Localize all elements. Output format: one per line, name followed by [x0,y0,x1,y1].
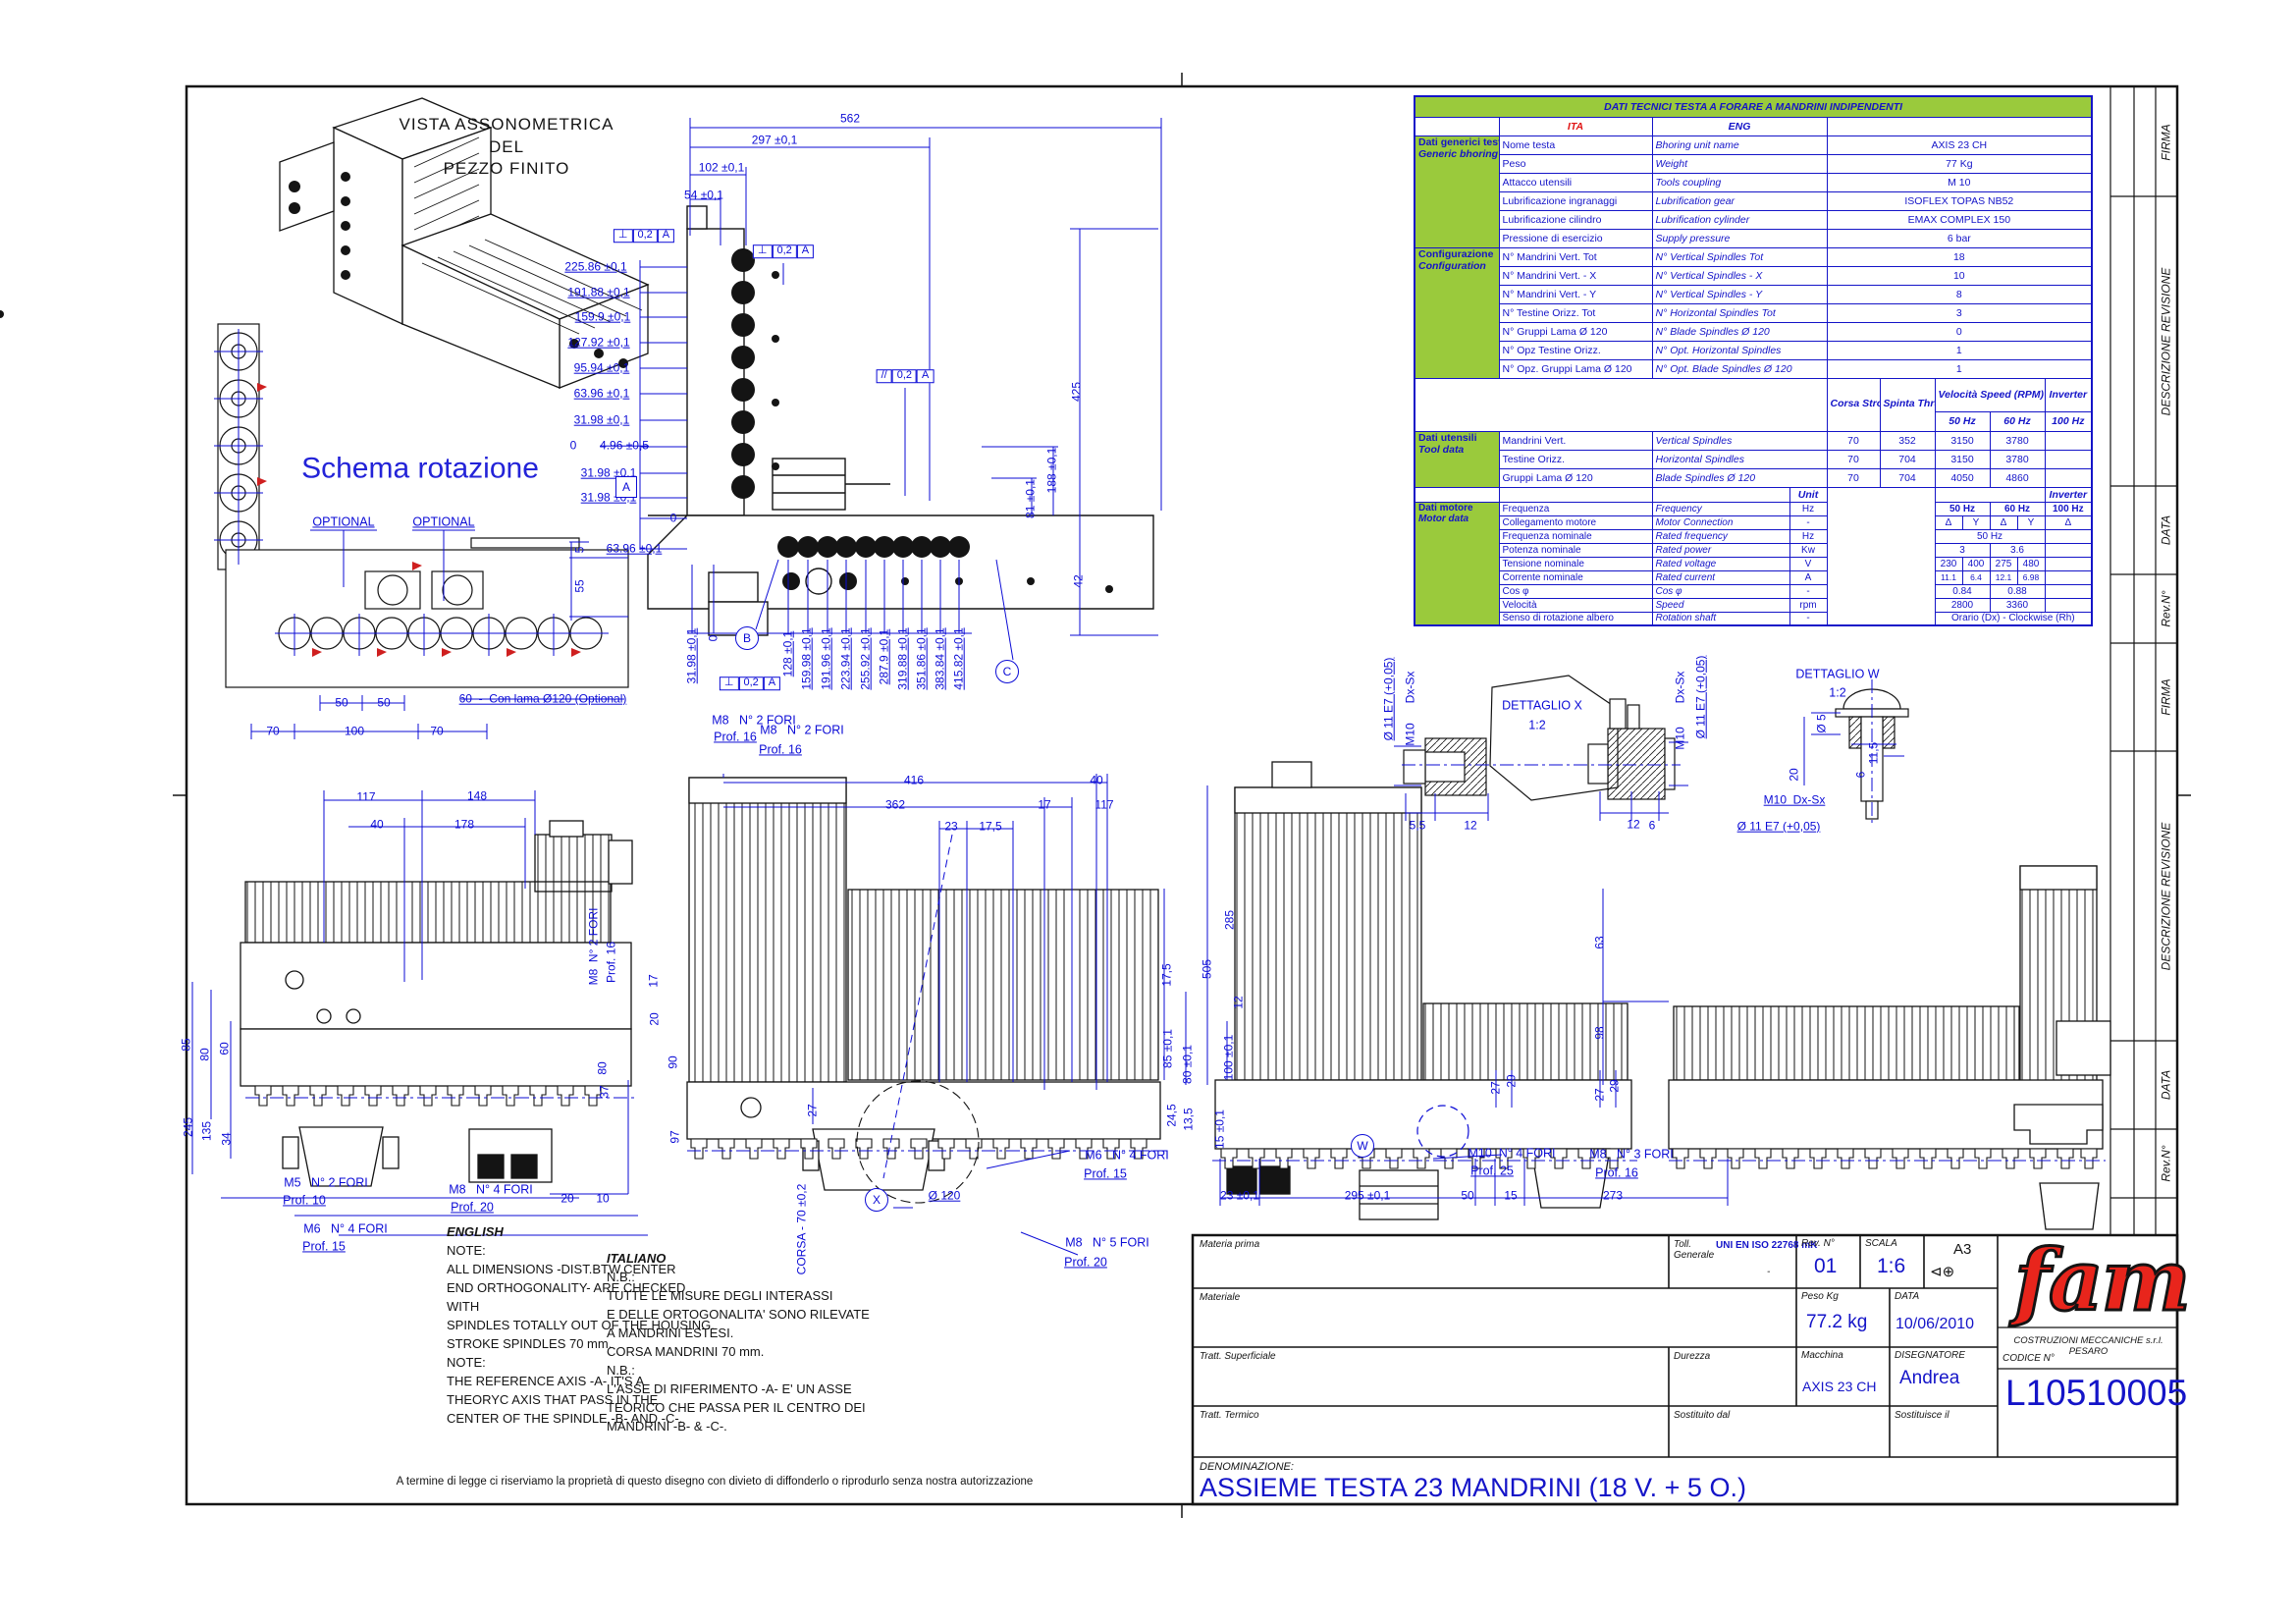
codice-value: L10510005 [2005,1373,2187,1414]
table-cell: Δ [2045,515,2092,529]
dim-label: 70 [266,726,279,738]
gdt-cell: A [797,244,814,258]
table-cell: N° Opt. Blade Spindles Ø 120 [1652,359,1827,378]
dim-label: 27 [1490,1081,1503,1094]
table-cell: N° Vertical Spindles Tot [1652,247,1827,266]
table-cell: 3780 [1990,450,2045,468]
table-cell: 3360 [1990,598,2045,612]
note-line: TEORICO CHE PASSA PER IL CENTRO DEI [607,1398,870,1417]
dim-label: 80 [597,1061,610,1074]
table-cell: Velocità [1499,598,1652,612]
table-cell: Kw [1789,543,1827,557]
dim-label: 97 [669,1130,682,1143]
table-cell: Y [1962,515,1990,529]
gdt-cell: 0,2 [772,244,796,258]
table-cell: 70 [1827,450,1880,468]
revision-strip-label: DESCRIZIONE REVISIONE [2161,823,2173,971]
hole-callout: M10 N° 4 FORI [1468,1147,1555,1160]
peso-value: 77.2 kg [1806,1312,1867,1333]
gdt-cell: A [658,229,674,243]
dim-label: 85 ±0,1 [1162,1029,1175,1068]
dim-label: Ø 11 E7 (+0,05) [1383,658,1396,741]
front-view-y [687,774,1227,1255]
dim-label: 80 [199,1048,212,1060]
dim-label: 85 [181,1038,193,1051]
table-cell: N° Vertical Spindles - X [1652,266,1827,285]
table-cell: 400 [1962,557,1990,570]
dim-label: 297 ±0,1 [752,135,798,147]
gdt-cell: 0,2 [738,677,763,690]
gdt-cell: A [764,677,780,690]
table-cell: Δ [1935,515,1962,529]
table-cell: 4860 [1990,468,2045,487]
table-cell: Attacco utensili [1499,173,1652,191]
speed-header: Spinta Thrust (N) [1880,378,1935,431]
dim-label: 159.9 ±0,1 [575,311,631,324]
table-cell: Cos φ [1652,584,1789,598]
dim-label: 50 [335,697,347,710]
table-cell: Hz [1789,502,1827,515]
gdt-cell: ⊥ [753,244,773,258]
hole-callout: M8 N° 3 FORI [1589,1148,1674,1161]
table-cell: Gruppi Lama Ø 120 [1499,468,1652,487]
table-cell: Testine Orizz. [1499,450,1652,468]
dim-label: OPTIONAL [312,515,374,528]
balloon-label: W [1351,1134,1374,1158]
dim-label: 37 [599,1085,612,1098]
schema-rotazione-drawing [214,324,628,739]
detail-x-scale: 1:2 [1528,719,1545,731]
group-label-general: Dati generici testaGeneric bhoring unit … [1415,135,1499,247]
group-label-tool: Dati utensiliTool data [1415,431,1499,487]
table-cell: N° Gruppi Lama Ø 120 [1499,322,1652,341]
disegnatore-value: Andrea [1899,1368,1959,1389]
dim-label: 128 ±0,1 [782,631,795,677]
projection-symbol-icon: ⊲⊕ [1930,1263,1954,1280]
detail-w-scale: 1:2 [1829,686,1845,699]
macchina-value: AXIS 23 CH [1802,1379,1876,1394]
speed-header: Corsa Stroke (mm) [1827,378,1880,431]
dim-label: 505 [1201,959,1214,979]
dim-label: 0 [570,440,577,453]
field-peso: Peso Kg [1801,1291,1839,1302]
dim-label: 15 [1504,1190,1517,1203]
denominazione-label: DENOMINAZIONE: [1200,1461,1294,1473]
table-cell [2045,450,2092,468]
dim-label: 362 [885,799,905,812]
dim-label: 5,5 [1410,820,1426,833]
revision-strip-label: DATA [2161,1070,2173,1100]
table-cell: Vertical Spindles [1652,431,1827,450]
note-line: MANDRINI -B- & -C-. [607,1417,870,1435]
table-cell: 1 [1827,341,2092,359]
dim-label: 225.86 ±0,1 [564,261,626,274]
table-cell: N° Mandrini Vert. - X [1499,266,1652,285]
table-cell: 0 [1827,322,2092,341]
table-cell: A [1789,570,1827,584]
speed-header: 60 Hz [1990,411,2045,431]
dim-label: 178 [454,819,474,832]
table-cell: Rated frequency [1652,529,1789,543]
note-line: ENGLISH [447,1222,715,1241]
table-cell: Rated power [1652,543,1789,557]
dim-label: 40 [370,819,383,832]
dim-label: 29 [1609,1079,1622,1092]
table-cell: Motor Connection [1652,515,1789,529]
table-cell: 6.4 [1962,570,1990,584]
table-cell: N° Testine Orizz. Tot [1499,303,1652,322]
codice-label: CODICE N° [2002,1353,2055,1364]
balloon-label: X [865,1188,888,1212]
dim-label: 42 [1073,574,1086,587]
table-cell: Corrente nominale [1499,570,1652,584]
table-cell: ISOFLEX TOPAS NB52 [1827,191,2092,210]
toll-dash: - [1767,1267,1770,1277]
note-line: A MANDRINI ESTESI. [607,1324,870,1342]
table-cell: Pressione di esercizio [1499,229,1652,247]
dim-label: 31.98 ±0,1 [686,628,699,684]
hole-callout: M6 N° 4 FORI [303,1222,388,1235]
inverter-label: Inverter [2045,487,2092,502]
dim-label: 159.98 ±0,1 [801,627,814,689]
dim-label: 191.96 ±0,1 [821,627,833,689]
revision-strip-label: DATA [2161,515,2173,545]
drawing-sheet: VISTA ASSONOMETRICADELPEZZO FINITOSchema… [0,0,2296,1624]
table-cell: Mandrini Vert. [1499,431,1652,450]
dim-label: 20 [561,1193,573,1206]
table-cell: Δ [1990,515,2017,529]
field-scala: SCALA [1865,1238,1897,1249]
dim-label: 60 - Con lama Ø120 (Optional) [459,693,627,706]
revision-strip [2110,86,2177,1235]
dim-label: 135 [201,1121,214,1141]
dim-label: 188 ±0,1 [1046,448,1059,494]
hole-callout: Prof. 25 [1470,1164,1514,1177]
table-cell: AXIS 23 CH [1827,135,2092,154]
revision-strip-label: Rev.N° [2161,1145,2173,1181]
dim-label: OPTIONAL [412,515,474,528]
table-cell: Rated voltage [1652,557,1789,570]
table-cell: M 10 [1827,173,2092,191]
dim-label: 4.96 ±0,5 [600,440,649,453]
table-cell: 77 Kg [1827,154,2092,173]
table-cell: Speed [1652,598,1789,612]
field-sostituisce-il: Sostituisce il [1895,1410,1949,1421]
field-tratt-termico: Tratt. Termico [1200,1410,1259,1421]
table-cell: N° Opt. Horizontal Spindles [1652,341,1827,359]
table-cell: V [1789,557,1827,570]
hole-callout: M8 N° 4 FORI [449,1183,533,1196]
table-cell [2045,584,2092,598]
detail-x-title: DETTAGLIO X [1502,699,1582,712]
dim-label: 23 ±0,1 [1220,1190,1259,1203]
gdt-cell: ⊥ [720,677,739,690]
table-cell: Peso [1499,154,1652,173]
dim-label: 12 [1464,820,1476,833]
table-cell: 0.84 [1935,584,1990,598]
field-disegnatore: DISEGNATORE [1895,1350,1965,1361]
dim-label: Ø 5 [1816,714,1829,732]
legal-disclaimer: A termine di legge ci riserviamo la prop… [243,1476,1186,1488]
gdt-frame: ⊥0,2A [614,229,674,243]
dim-label: M10 Dx-Sx [1764,794,1826,807]
datum-label: A [615,476,637,498]
col-header-ita: ITA [1499,117,1652,135]
field-data: DATA [1895,1291,1919,1302]
dim-label: 287.9 ±0,1 [879,629,891,685]
dim-label: 17 [1038,799,1050,812]
hole-callout: M5 N° 2 FORI [284,1176,368,1189]
table-cell [2045,431,2092,450]
scala-value: 1:6 [1877,1255,1905,1278]
detail-w-title: DETTAGLIO W [1795,668,1879,680]
table-cell: Tools coupling [1652,173,1827,191]
notes-italian: ITALIANON.B.:TUTTE LE MISURE DEGLI INTER… [607,1249,870,1435]
dim-label: Ø 120 [929,1190,961,1203]
dim-label: 5 [574,547,587,554]
dim-label: 13,5 [1183,1108,1196,1130]
dim-label: 29 [1506,1074,1519,1087]
table-cell: 6 bar [1827,229,2092,247]
note-line: TUTTE LE MISURE DEGLI INTERASSI [607,1286,870,1305]
dim-label: 55 [574,579,587,592]
table-cell: 275 [1990,557,2017,570]
table-cell: 352 [1880,431,1935,450]
speed-header: 50 Hz [1935,411,1990,431]
table-cell: 0.88 [1990,584,2045,598]
field-tratt-superficiale: Tratt. Superficiale [1200,1351,1276,1362]
table-cell: Rotation shaft [1652,612,1789,625]
dim-label: 54 ±0,1 [684,189,723,202]
table-cell: 1 [1827,359,2092,378]
dim-label: 27 [807,1104,820,1116]
table-cell: Frequenza [1499,502,1652,515]
hole-callout: M8 N° 2 FORI [760,724,844,736]
table-cell: N° Mandrini Vert. Tot [1499,247,1652,266]
gdt-cell: A [917,369,934,383]
note-line: L'ASSE DI RIFERIMENTO -A- E' UN ASSE [607,1380,870,1398]
table-cell: 50 Hz [1935,502,1990,515]
table-cell [2045,543,2092,557]
hole-callout: Prof. 10 [283,1194,326,1207]
rev-value: 01 [1814,1255,1837,1278]
dim-label: 0 [708,635,721,642]
gdt-cell: ⊥ [614,229,633,243]
dim-label: 0 [670,513,677,525]
hole-callout: Prof. 16 [1595,1166,1638,1179]
speed-header: 100 Hz [2045,411,2092,431]
dim-label: 70 [430,726,443,738]
table-cell: Frequenza nominale [1499,529,1652,543]
field-rev: Rev. N° [1801,1238,1835,1249]
unit-header: Unit [1789,487,1827,502]
table-cell: Lubrification cylinder [1652,210,1827,229]
speed-header: Inverter [2045,378,2092,411]
dim-label: 11,5 [1868,742,1881,764]
table-cell: 60 Hz [1990,502,2045,515]
field-macchina: Macchina [1801,1350,1843,1361]
dim-label: 17 [648,974,661,987]
dim-label: 148 [467,790,487,803]
table-cell: Lubrificazione ingranaggi [1499,191,1652,210]
note-line: N.B.: [607,1361,870,1380]
table-cell: Weight [1652,154,1827,173]
table-cell: 704 [1880,450,1935,468]
table-cell: 480 [2017,557,2045,570]
table-cell: 3150 [1935,431,1990,450]
gdt-cell: // [877,369,892,383]
schema-title: Schema rotazione [301,453,539,484]
hole-callout: M6 N° 4 FORI [1085,1149,1169,1162]
iso-view-title: VISTA ASSONOMETRICA [400,116,614,134]
dim-label: 20 [649,1012,662,1025]
table-cell: Potenza nominale [1499,543,1652,557]
table-cell: Frequency [1652,502,1789,515]
dim-label: 415.82 ±0,1 [953,627,966,689]
dim-label: 17,5 [979,821,1001,834]
dim-label: 24,5 [1166,1104,1179,1126]
hole-callout: Prof. 16 [606,942,618,983]
gdt-cell: 0,2 [892,369,917,383]
table-cell: Nome testa [1499,135,1652,154]
hole-callout: Prof. 16 [714,731,757,743]
table-cell [2045,598,2092,612]
table-cell: 8 [1827,285,2092,303]
dim-label: 285 [1224,910,1237,930]
dim-label: 425 [1071,382,1084,402]
table-cell: 3150 [1935,450,1990,468]
dim-label: Ø 11 E7 (+0,05) [1695,656,1708,739]
dim-label: 191.88 ±0,1 [567,287,629,299]
dim-label: Ø 11 E7 (+0,05) [1737,821,1821,834]
table-cell: Y [2017,515,2045,529]
dim-label: 12 [1627,819,1639,832]
dim-label: 117 [1095,799,1113,812]
table-cell: - [1789,584,1827,598]
hole-callout: Prof. 15 [1084,1167,1127,1180]
dim-label: 12 [1233,996,1246,1008]
dim-label: 6 [1855,772,1868,779]
dim-label: 63.96 ±0,1 [607,543,663,556]
table-cell: 3780 [1990,431,2045,450]
revision-strip-label: FIRMA [2161,678,2173,715]
field-durezza: Durezza [1674,1351,1710,1362]
dim-label: 319.88 ±0,1 [897,627,910,689]
dim-label: 100 [345,726,364,738]
dim-label: 295 ±0,1 [1345,1190,1391,1203]
table-cell [2045,570,2092,584]
table-cell: rpm [1789,598,1827,612]
col-header-eng: ENG [1652,117,1827,135]
dim-label: 23 [944,821,957,834]
dim-label: 100 ±0,1 [1223,1035,1236,1081]
field-materiale: Materiale [1200,1292,1240,1303]
field-toll-generale: Toll. Generale [1674,1239,1714,1261]
dim-label: 562 [840,113,860,126]
field-materia-prima: Materia prima [1200,1239,1259,1250]
gdt-frame: ⊥0,2A [753,244,814,258]
table-cell: - [1789,612,1827,625]
dim-label: 223.94 ±0,1 [840,627,853,689]
dim-label: 17,5 [1161,963,1174,986]
iso-view-title: DEL [489,138,524,156]
table-cell: Collegamento motore [1499,515,1652,529]
table-cell: 70 [1827,431,1880,450]
dim-label: 20 [1789,768,1801,781]
dim-label: 102 ±0,1 [699,162,745,175]
table-cell: N° Vertical Spindles - Y [1652,285,1827,303]
note-line: CORSA MANDRINI 70 mm. [607,1342,870,1361]
dim-label: M10 [1405,723,1417,745]
table-cell: 6.98 [2017,570,2045,584]
table-cell: - [1789,515,1827,529]
table-cell: Hz [1789,529,1827,543]
dim-label: 50 [1461,1190,1473,1203]
dim-label: 273 [1603,1190,1623,1203]
isometric-view-drawing [0,98,648,388]
table-cell: Horizontal Spindles [1652,450,1827,468]
table-cell [2045,557,2092,570]
dim-label: 351.86 ±0,1 [916,627,929,689]
group-label-config: ConfigurazioneConfiguration [1415,247,1499,378]
dim-label: 63.96 ±0,1 [574,388,630,401]
dim-label: 90 [667,1056,680,1068]
table-cell: 704 [1880,468,1935,487]
dim-label: 245 [183,1117,195,1137]
table-cell: N° Blade Spindles Ø 120 [1652,322,1827,341]
table-cell: Tensione nominale [1499,557,1652,570]
data-value: 10/06/2010 [1896,1316,1974,1333]
table-cell: 4050 [1935,468,1990,487]
table-cell: 2800 [1935,598,1990,612]
table-cell: 3 [1827,303,2092,322]
table-cell: N° Horizontal Spindles Tot [1652,303,1827,322]
dim-label: 60 [219,1042,232,1055]
dim-label: 98 [1594,1026,1607,1039]
dim-label: 34 [221,1132,234,1145]
balloon-label: C [995,660,1019,683]
speed-header: Velocità Speed (RPM) [1935,378,2045,411]
dim-label: 63 [1594,936,1607,948]
field-sostituito-dal: Sostituito dal [1674,1410,1730,1421]
dim-label: 95.94 ±0,1 [574,362,630,375]
table-cell: 3 [1935,543,1990,557]
dim-label: 10 [596,1193,609,1206]
table-cell: N° Opz Testine Orizz. [1499,341,1652,359]
dim-label: 383.84 ±0,1 [934,627,947,689]
table-cell: N° Mandrini Vert. - Y [1499,285,1652,303]
dim-label: 127.92 ±0,1 [567,337,629,350]
table-cell: 18 [1827,247,2092,266]
gdt-frame: //0,2A [877,369,934,383]
dim-label: 80 ±0,1 [1182,1045,1195,1084]
table-cell: Supply pressure [1652,229,1827,247]
dim-label: M10 [1675,727,1687,749]
hole-callout: Prof. 16 [759,743,802,756]
format-label: A3 [1953,1241,1971,1258]
dim-label: 15 ±0,1 [1214,1110,1227,1149]
dim-label: 40 [1090,775,1102,787]
iso-view-title: PEZZO FINITO [444,160,570,178]
hole-callout: Prof. 15 [302,1240,346,1253]
group-label-motor: Dati motoreMotor data [1415,502,1499,625]
front-view-x [192,790,648,1235]
balloon-label: B [735,626,759,650]
note-line: ITALIANO [607,1249,870,1268]
table-cell: EMAX COMPLEX 150 [1827,210,2092,229]
detail-x-drawing [1394,676,1688,821]
dim-label: 117 [356,791,375,804]
